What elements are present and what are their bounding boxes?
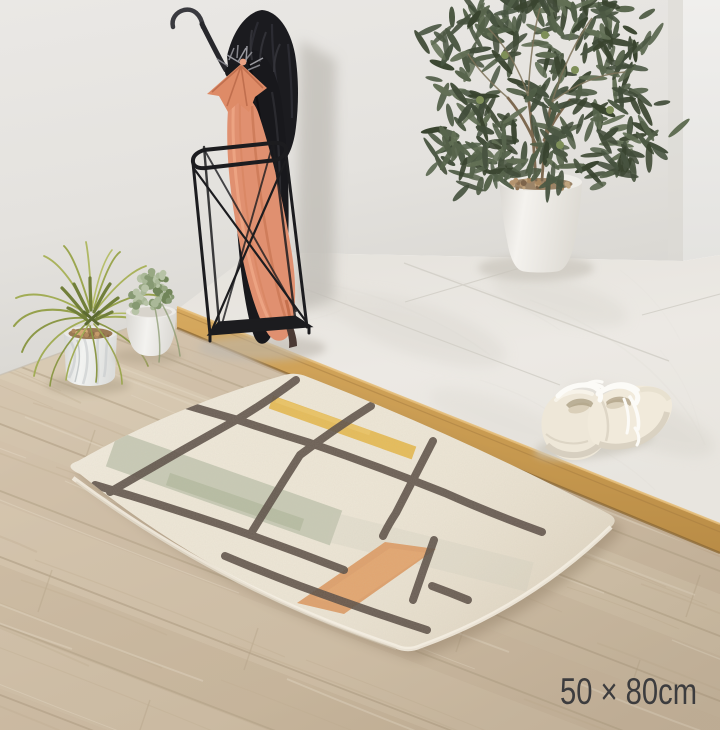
svg-text:50 × 80cm: 50 × 80cm <box>560 671 697 712</box>
